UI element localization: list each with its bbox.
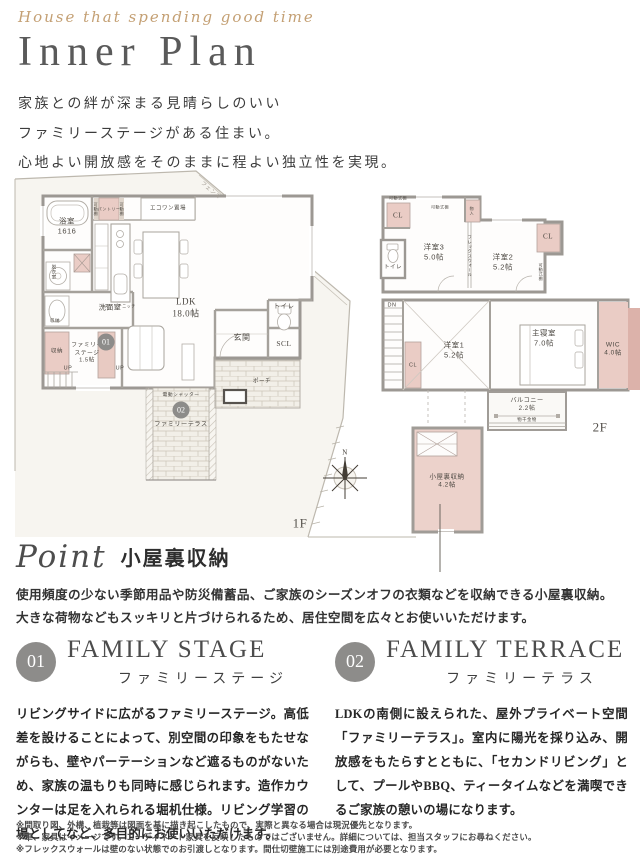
point-title: 小屋裏収納 <box>121 542 231 573</box>
point-body-line: 使用頻度の少ない季節用品や防災備蓄品、ご家族のシーズンオフの衣類などを収納できる… <box>16 584 626 607</box>
compass-icon <box>323 457 367 499</box>
plan-label: 洋室3 5.0帖 <box>424 242 445 262</box>
intro-text: 家族との絆が深まる見晴らしのいい ファミリーステージがある住まい。 心地よい開放… <box>18 90 618 179</box>
plan-label: CL <box>393 211 403 220</box>
plan-label: LDK 18.0帖 <box>172 296 199 319</box>
plan-label: フレックスウォール <box>467 235 472 277</box>
plan-label: CL <box>409 362 417 369</box>
plan-label: UP <box>116 365 125 372</box>
section-number-badge: 02 <box>335 642 375 682</box>
plan-label: 可動棚 <box>119 202 124 216</box>
plan-label: トイレ <box>274 303 295 311</box>
plan-label: フェンス <box>199 181 222 202</box>
footnote-line: ※車、家具はイメージです。コーディネート家具を反映したものではございません。詳細… <box>16 832 628 844</box>
point-script-label: Point <box>16 542 107 573</box>
plan-label: 洗面室 <box>99 303 122 312</box>
plan-label: パントリー <box>98 206 121 211</box>
plan-label: 収納 <box>51 348 63 355</box>
header-script-tagline: House that spending good time <box>18 8 618 26</box>
section-family-terrace: 02 FAMILY TERRACE ファミリーテラス LDKの南側に設えられた、… <box>335 636 628 847</box>
plan-label: DN <box>388 302 397 309</box>
header: House that spending good time Inner Plan… <box>18 8 618 179</box>
plan-label: SCL <box>276 339 291 349</box>
point-body: 使用頻度の少ない季節用品や防災備蓄品、ご家族のシーズンオフの衣類などを収納できる… <box>16 584 626 631</box>
section-heading: FAMILY STAGE <box>67 636 309 664</box>
footnote-line: ※間取り図、外構、植栽等は図面を基に描き起こしたもので、実際と異なる場合は現況優… <box>16 820 628 832</box>
section-heading: FAMILY TERRACE <box>386 636 628 664</box>
section-body: LDKの南側に設えられた、屋外プライベート空間「ファミリーテラス」。室内に陽光を… <box>335 702 628 823</box>
plan-label: N <box>342 448 348 457</box>
page-title: Inner Plan <box>18 28 618 76</box>
plan-number-badge: 02 <box>173 402 190 419</box>
plan-number-badge: 01 <box>98 334 115 351</box>
feature-sections: 01 FAMILY STAGE ファミリーステージ リビングサイドに広がるファミ… <box>16 636 628 847</box>
intro-line: 心地よい開放感をそのままに程よい独立性を実現。 <box>18 149 618 179</box>
plan-label: 物干金物 <box>517 417 537 423</box>
plan-label: 可動棚 <box>93 202 98 216</box>
plan-label: ポーチ <box>253 378 271 385</box>
plan-label: 浴室 1616 <box>58 216 77 236</box>
plan-label: エコワン置場 <box>150 205 186 212</box>
plan-label: 可動式棚 <box>389 195 407 200</box>
point-body-line: 大きな荷物などもスッキリと片づけられるため、居住空間を広々とお使いいただけます。 <box>16 607 626 630</box>
plan-label: スイッチニッチ <box>104 303 136 308</box>
plan-label: CL <box>543 232 553 241</box>
plan-label: トイレ <box>384 264 402 271</box>
plan-label: 小屋裏収納 4.2帖 <box>430 474 465 491</box>
plan-label: 電動シャッター <box>162 393 199 399</box>
section-subheading: ファミリーテラス <box>386 668 628 688</box>
plan-label: ファミリーテラス <box>154 421 207 429</box>
plan-label: ファミリー ステージ 1.5帖 <box>71 343 103 366</box>
floorplan-2f-labels: 可動式棚可動式棚CL物入洋室3 5.0帖フレックスウォール洋室2 5.2帖CL可… <box>376 190 640 582</box>
section-number-badge: 01 <box>16 642 56 682</box>
floorplan-1f <box>10 166 420 544</box>
plan-label: 脱衣室 <box>51 265 57 280</box>
plan-label: 玄関 <box>234 333 251 343</box>
section-subheading: ファミリーステージ <box>67 668 309 688</box>
floorplan-1f-labels: フェンス浴室 1616脱衣室洗面室収納可動棚パントリー可動棚エコワン置場LDK … <box>10 166 420 544</box>
plan-label: UP <box>64 365 73 372</box>
plan-label: 洋室1 5.2帖 <box>444 340 465 360</box>
plan-label: 洋室2 5.2帖 <box>493 252 514 272</box>
point-section: Point 小屋裏収納 使用頻度の少ない季節用品や防災備蓄品、ご家族のシーズンオ… <box>16 542 626 631</box>
footnotes: ※間取り図、外構、植栽等は図面を基に描き起こしたもので、実際と異なる場合は現況優… <box>16 820 628 856</box>
plan-label: 可動式棚 <box>538 263 543 281</box>
plan-label: バルコニー 2.2帖 <box>510 397 543 413</box>
floorplan-2f <box>376 190 640 582</box>
footnote-line: ※フレックスウォールは壁のない状態でのお引渡しとなります。間仕切壁施工には別途費… <box>16 844 628 856</box>
intro-line: ファミリーステージがある住まい。 <box>18 120 618 150</box>
plan-label: WIC 4.0帖 <box>604 342 622 359</box>
plan-label: 物入 <box>469 207 474 216</box>
plan-label: 収納 <box>50 318 60 324</box>
plan-label: 1F <box>293 516 308 533</box>
plan-label: 可動式棚 <box>431 204 449 209</box>
plan-label: 2F <box>593 420 608 437</box>
intro-line: 家族との絆が深まる見晴らしのいい <box>18 90 618 120</box>
plan-label: 主寝室 7.0帖 <box>532 328 556 348</box>
section-family-stage: 01 FAMILY STAGE ファミリーステージ リビングサイドに広がるファミ… <box>16 636 309 847</box>
